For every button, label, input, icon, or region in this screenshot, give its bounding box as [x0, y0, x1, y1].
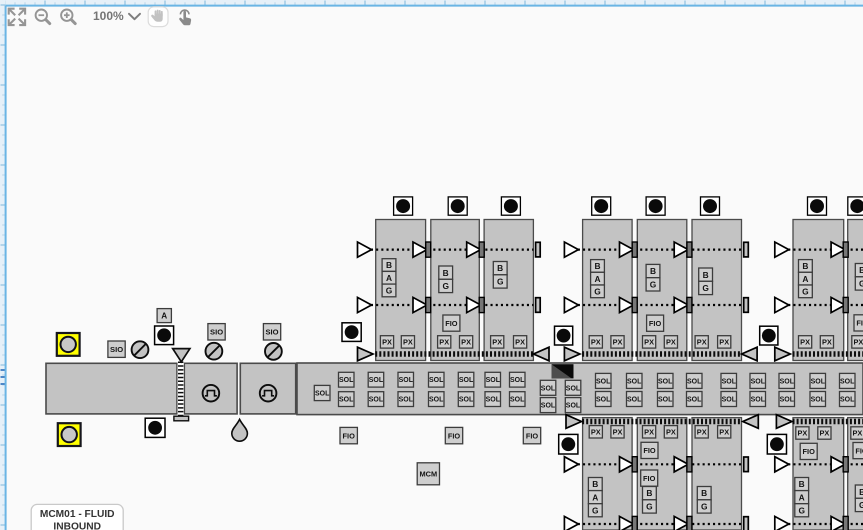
svg-text:B: B: [443, 268, 449, 278]
svg-text:SOL: SOL: [459, 377, 474, 384]
svg-text:SIO: SIO: [265, 328, 278, 337]
svg-text:B: B: [646, 488, 652, 498]
svg-text:SOL: SOL: [541, 403, 556, 410]
svg-text:FIO: FIO: [855, 446, 863, 455]
svg-text:B: B: [859, 487, 863, 497]
svg-text:A: A: [386, 273, 392, 283]
svg-text:G: G: [859, 500, 863, 510]
svg-text:SOL: SOL: [315, 391, 330, 398]
svg-text:G: G: [592, 505, 599, 515]
svg-text:FIO: FIO: [448, 431, 461, 440]
svg-text:PX: PX: [852, 429, 862, 438]
svg-text:PX: PX: [515, 338, 525, 347]
svg-text:B: B: [592, 479, 598, 489]
svg-text:SOL: SOL: [339, 397, 354, 404]
svg-text:G: G: [646, 502, 653, 512]
svg-text:SOL: SOL: [722, 378, 737, 385]
svg-text:PX: PX: [382, 338, 392, 347]
svg-text:B: B: [386, 260, 392, 270]
svg-text:SOL: SOL: [339, 377, 354, 384]
svg-text:SIO: SIO: [110, 345, 123, 354]
svg-text:SOL: SOL: [780, 397, 795, 404]
svg-text:FIO: FIO: [643, 474, 656, 483]
svg-text:PX: PX: [403, 338, 413, 347]
svg-text:G: G: [650, 279, 657, 289]
svg-text:B: B: [497, 263, 503, 273]
svg-text:SOL: SOL: [566, 385, 581, 392]
svg-text:FIO: FIO: [343, 431, 356, 440]
svg-text:PX: PX: [613, 338, 623, 347]
svg-text:PX: PX: [644, 338, 654, 347]
svg-text:SIO: SIO: [210, 328, 223, 337]
svg-text:SOL: SOL: [369, 377, 384, 384]
svg-text:SOL: SOL: [429, 397, 444, 404]
svg-text:SOL: SOL: [627, 397, 642, 404]
svg-text:PX: PX: [461, 338, 471, 347]
svg-text:SOL: SOL: [840, 378, 855, 385]
svg-text:SOL: SOL: [510, 377, 525, 384]
svg-text:SOL: SOL: [596, 397, 611, 404]
svg-text:G: G: [701, 502, 708, 512]
svg-text:B: B: [802, 261, 808, 271]
svg-text:FIO: FIO: [856, 319, 863, 328]
svg-text:INBOUND: INBOUND: [53, 521, 101, 530]
svg-text:SOL: SOL: [658, 397, 673, 404]
svg-text:SOL: SOL: [459, 397, 474, 404]
svg-text:PX: PX: [819, 429, 829, 438]
svg-text:PX: PX: [719, 428, 729, 437]
svg-text:SOL: SOL: [811, 378, 826, 385]
svg-text:G: G: [386, 286, 393, 296]
svg-text:PX: PX: [666, 428, 676, 437]
svg-text:B: B: [799, 479, 805, 489]
svg-text:B: B: [703, 270, 709, 280]
svg-text:SOL: SOL: [596, 378, 611, 385]
svg-text:PX: PX: [613, 428, 623, 437]
svg-text:SOL: SOL: [722, 397, 737, 404]
svg-text:FIO: FIO: [445, 319, 458, 328]
svg-text:100%: 100%: [93, 9, 124, 23]
svg-text:SOL: SOL: [566, 403, 581, 410]
svg-text:SOL: SOL: [658, 378, 673, 385]
svg-text:SOL: SOL: [687, 378, 702, 385]
svg-text:SOL: SOL: [751, 378, 766, 385]
svg-text:SOL: SOL: [687, 397, 702, 404]
svg-text:B: B: [701, 488, 707, 498]
svg-text:PX: PX: [697, 428, 707, 437]
svg-text:SOL: SOL: [541, 385, 556, 392]
svg-text:PX: PX: [591, 338, 601, 347]
svg-text:FIO: FIO: [643, 446, 656, 455]
svg-text:PX: PX: [644, 428, 654, 437]
svg-text:PX: PX: [492, 338, 502, 347]
svg-text:PX: PX: [666, 338, 676, 347]
svg-text:A: A: [592, 492, 598, 502]
svg-text:A: A: [799, 492, 805, 502]
svg-text:G: G: [802, 287, 809, 297]
svg-text:G: G: [497, 277, 504, 287]
svg-text:PX: PX: [800, 338, 810, 347]
svg-text:FIO: FIO: [803, 447, 816, 456]
svg-text:FIO: FIO: [526, 431, 539, 440]
svg-text:A: A: [594, 274, 600, 284]
svg-text:SOL: SOL: [780, 378, 795, 385]
svg-text:SOL: SOL: [811, 397, 826, 404]
svg-text:G: G: [798, 505, 805, 515]
svg-text:A: A: [161, 312, 167, 321]
svg-text:PX: PX: [797, 429, 807, 438]
svg-text:FIO: FIO: [649, 319, 662, 328]
svg-text:G: G: [442, 281, 449, 291]
svg-text:B: B: [650, 266, 656, 276]
svg-text:PX: PX: [853, 338, 863, 347]
svg-text:SOL: SOL: [840, 397, 855, 404]
svg-text:A: A: [802, 274, 808, 284]
svg-text:G: G: [702, 283, 709, 293]
svg-text:B: B: [594, 261, 600, 271]
svg-text:SOL: SOL: [369, 397, 384, 404]
svg-text:PX: PX: [591, 428, 601, 437]
svg-text:PX: PX: [719, 338, 729, 347]
svg-text:SOL: SOL: [510, 397, 525, 404]
svg-text:SOL: SOL: [399, 377, 414, 384]
svg-text:G: G: [594, 287, 601, 297]
svg-text:SOL: SOL: [486, 397, 501, 404]
svg-text:B: B: [859, 265, 863, 275]
svg-text:G: G: [859, 279, 863, 289]
svg-text:SOL: SOL: [486, 377, 501, 384]
svg-text:MCM01 - FLUID: MCM01 - FLUID: [40, 509, 115, 520]
svg-text:SOL: SOL: [751, 397, 766, 404]
svg-text:SOL: SOL: [399, 397, 414, 404]
svg-text:SOL: SOL: [429, 377, 444, 384]
svg-text:PX: PX: [822, 338, 832, 347]
svg-text:SOL: SOL: [627, 378, 642, 385]
svg-text:PX: PX: [439, 338, 449, 347]
svg-text:PX: PX: [697, 338, 707, 347]
svg-text:MCM: MCM: [419, 470, 437, 479]
